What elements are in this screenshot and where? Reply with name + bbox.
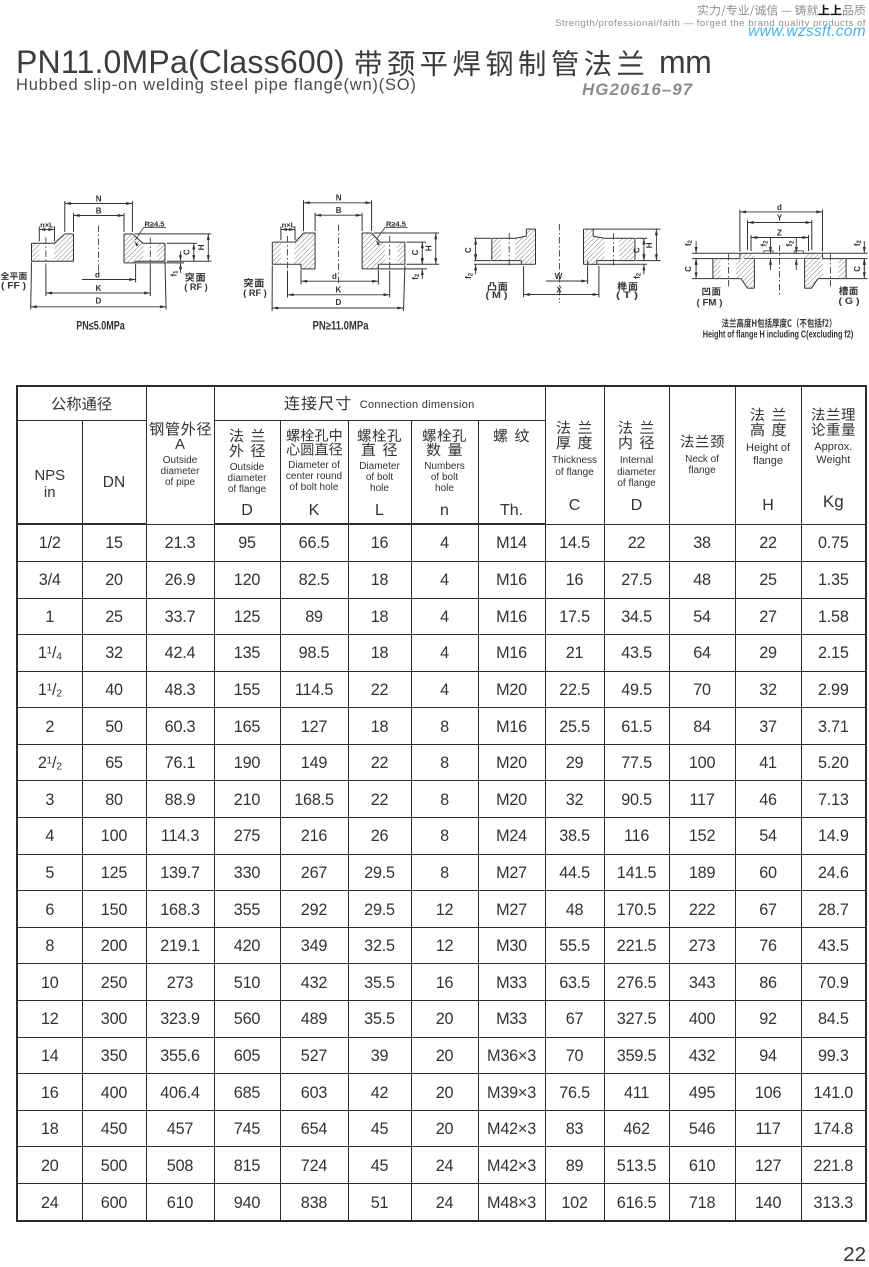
svg-text:C: C [633,247,642,253]
svg-text:Height of flange H including C: Height of flange H including C(excluding… [703,328,854,340]
svg-text:( FM ): ( FM ) [697,297,723,308]
svg-text:C: C [684,266,693,272]
svg-text:f1: f1 [170,270,180,277]
svg-text:D: D [96,297,102,306]
svg-text:H: H [645,242,654,248]
svg-text:( RF ): ( RF ) [243,288,267,299]
svg-text:X: X [556,285,562,294]
svg-text:n×L: n×L [40,221,54,230]
svg-text:H: H [424,245,433,251]
svg-text:d: d [777,203,782,212]
svg-text:H: H [197,244,206,250]
svg-text:N: N [96,194,102,203]
svg-text:( T ): ( T ) [616,290,638,301]
svg-text:( FF ): ( FF ) [1,281,26,291]
svg-text:PN≤5.0MPa: PN≤5.0MPa [76,321,125,333]
svg-text:f2: f2 [853,239,863,246]
svg-text:N: N [336,194,342,203]
svg-text:C: C [411,249,420,255]
svg-text:K: K [96,284,102,293]
svg-text:C: C [853,266,862,272]
svg-text:f2: f2 [633,272,643,279]
svg-text:W: W [555,272,563,281]
svg-text:Z: Z [777,229,782,238]
svg-text:B: B [336,206,342,215]
svg-text:f2: f2 [684,239,694,246]
svg-text:d: d [95,270,100,279]
svg-text:C: C [182,249,191,255]
svg-text:f2: f2 [411,273,421,280]
svg-text:K: K [336,286,342,295]
svg-text:PN≥11.0MPa: PN≥11.0MPa [313,321,369,333]
svg-text:( G ): ( G ) [839,296,860,307]
svg-text:f2: f2 [464,272,474,279]
svg-text:f2: f2 [785,240,795,247]
svg-text:f2: f2 [759,240,769,247]
svg-text:D: D [336,298,342,307]
svg-text:B: B [96,206,102,215]
svg-text:d: d [332,272,337,281]
svg-text:( RF ): ( RF ) [184,282,208,293]
svg-text:( M ): ( M ) [486,290,508,301]
svg-text:Y: Y [777,214,783,223]
svg-text:n×L: n×L [282,221,296,230]
svg-text:C: C [464,247,473,253]
